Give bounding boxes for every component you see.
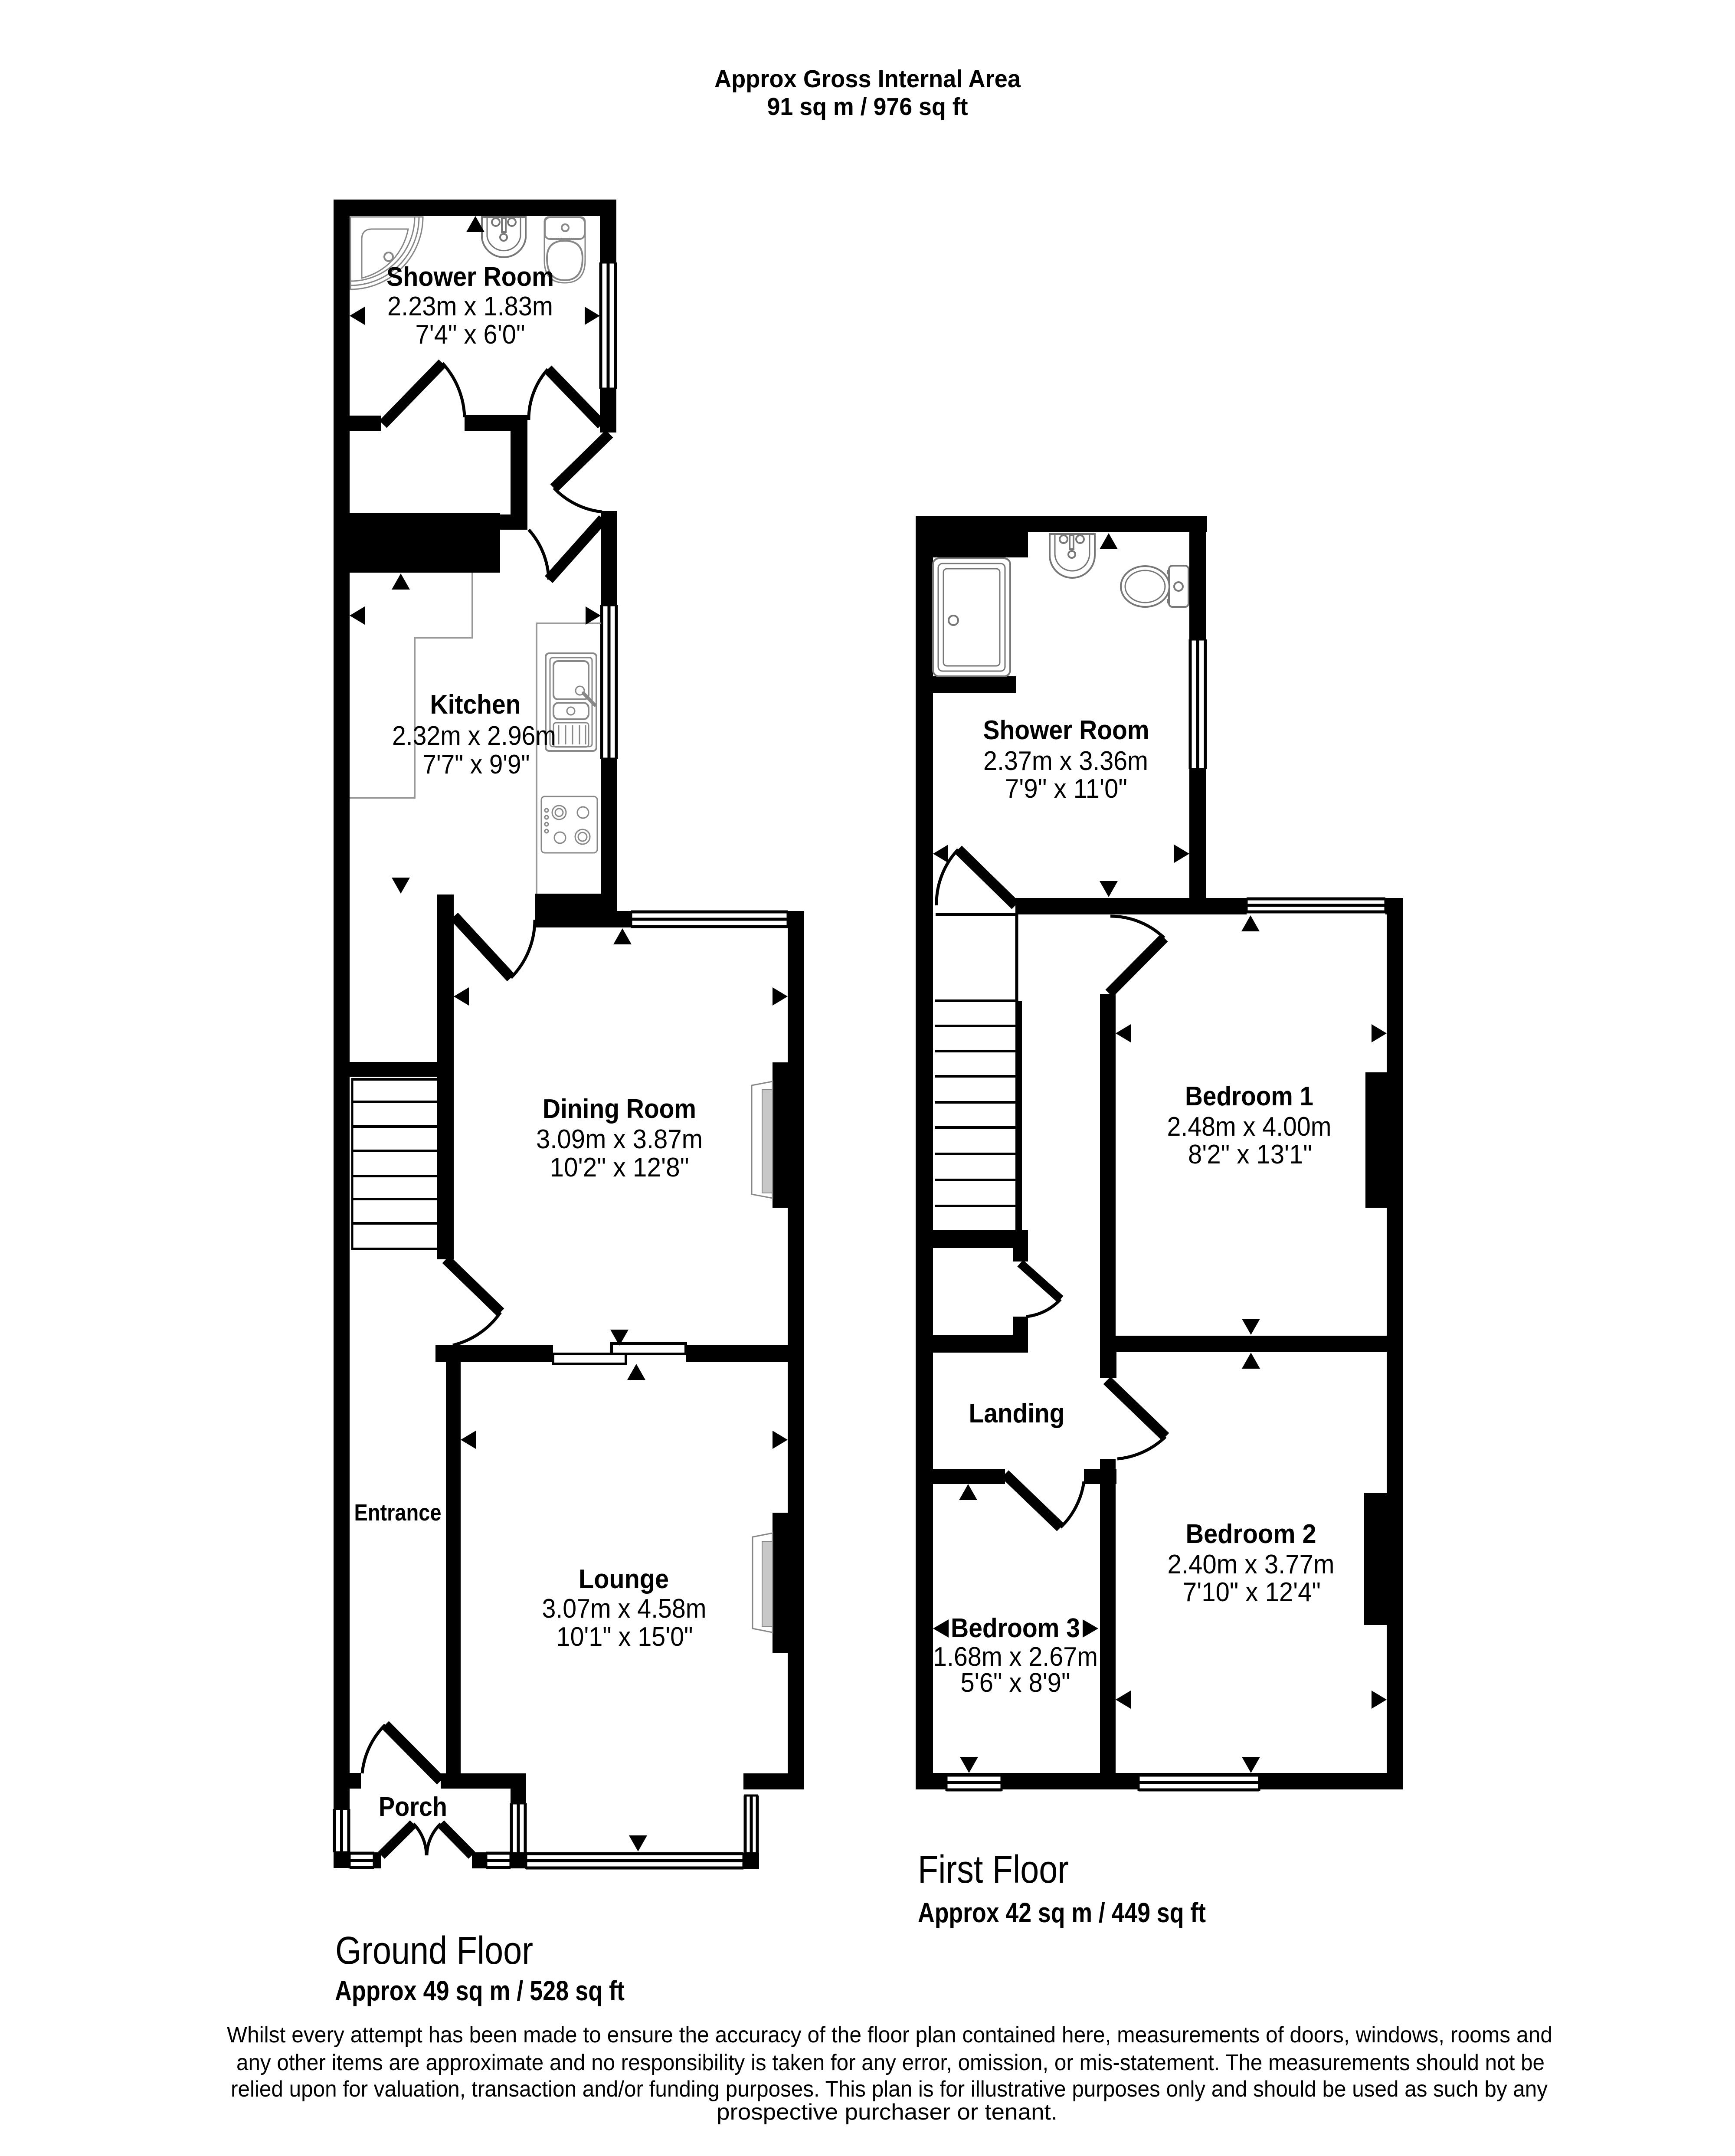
svg-text:Ground Floor: Ground Floor [335,1929,533,1973]
svg-text:2.37m x 3.36m: 2.37m x 3.36m [983,746,1148,776]
svg-text:Lounge: Lounge [579,1564,669,1594]
svg-text:7'4" x 6'0": 7'4" x 6'0" [416,320,525,350]
svg-text:1.68m x 2.67m: 1.68m x 2.67m [933,1642,1098,1672]
svg-text:prospective purchaser or tenan: prospective purchaser or tenant. [717,2100,1057,2125]
svg-text:Kitchen: Kitchen [430,690,521,720]
svg-text:10'2" x 12'8": 10'2" x 12'8" [550,1153,689,1183]
svg-text:Whilst every attempt has been: Whilst every attempt has been made to en… [227,2022,1552,2048]
svg-text:any other items are approximat: any other items are approximate and no r… [236,2050,1545,2075]
svg-text:Shower Room: Shower Room [983,715,1149,745]
svg-text:Landing: Landing [969,1399,1065,1429]
svg-text:2.23m x 1.83m: 2.23m x 1.83m [387,292,553,321]
svg-text:Bedroom 2: Bedroom 2 [1186,1519,1316,1549]
svg-text:3.09m x 3.87m: 3.09m x 3.87m [536,1124,703,1154]
svg-text:Approx 49 sq m / 528 sq ft: Approx 49 sq m / 528 sq ft [335,1975,625,2006]
svg-text:Bedroom 3: Bedroom 3 [951,1613,1080,1643]
svg-text:2.48m x 4.00m: 2.48m x 4.00m [1167,1112,1332,1142]
svg-text:Approx Gross Internal Area: Approx Gross Internal Area [714,65,1021,93]
svg-text:Approx 42 sq m / 449 sq ft: Approx 42 sq m / 449 sq ft [918,1897,1206,1928]
svg-text:91 sq m / 976 sq ft: 91 sq m / 976 sq ft [767,93,968,121]
svg-text:7'7" x 9'9": 7'7" x 9'9" [423,750,530,780]
svg-text:2.40m x 3.77m: 2.40m x 3.77m [1168,1550,1335,1579]
svg-text:5'6" x 8'9": 5'6" x 8'9" [961,1668,1070,1698]
svg-text:8'2" x 13'1": 8'2" x 13'1" [1188,1140,1312,1170]
svg-text:10'1" x 15'0": 10'1" x 15'0" [557,1622,693,1652]
svg-text:Entrance: Entrance [354,1500,442,1526]
svg-text:7'9" x 11'0": 7'9" x 11'0" [1005,774,1127,804]
svg-text:2.32m x 2.96m: 2.32m x 2.96m [392,721,556,751]
svg-text:Dining Room: Dining Room [543,1094,696,1124]
svg-text:Porch: Porch [379,1792,447,1822]
svg-text:7'10" x 12'4": 7'10" x 12'4" [1183,1577,1321,1607]
svg-text:Shower Room: Shower Room [386,262,554,292]
svg-text:relied upon for valuation, tra: relied upon for valuation, transaction a… [231,2077,1548,2102]
svg-text:First Floor: First Floor [918,1848,1069,1891]
svg-text:3.07m x 4.58m: 3.07m x 4.58m [542,1594,707,1624]
svg-text:Bedroom 1: Bedroom 1 [1185,1081,1313,1111]
